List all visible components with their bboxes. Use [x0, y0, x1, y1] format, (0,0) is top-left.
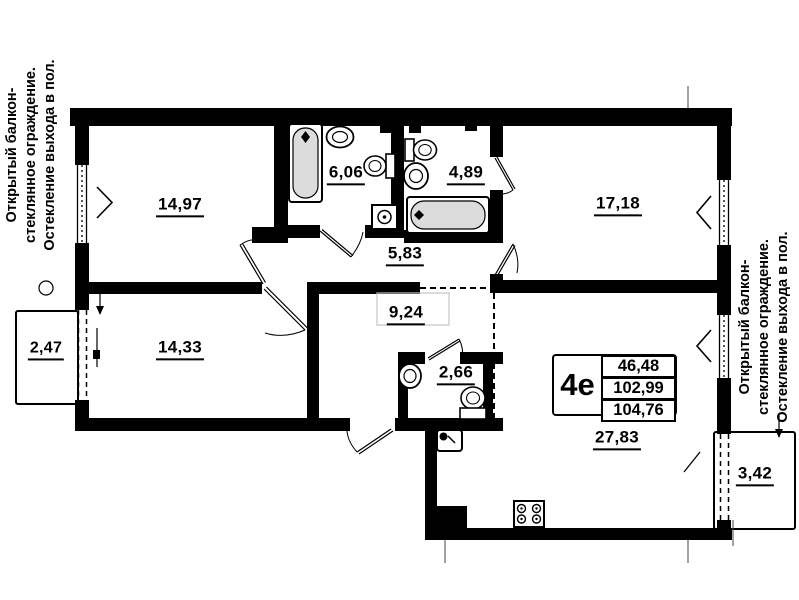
vent-shaft-icon — [380, 120, 393, 133]
window-chevron-icon — [697, 196, 711, 229]
window-chevron-icon — [97, 187, 112, 218]
sink-icon — [399, 364, 421, 388]
kitchen-sink-icon — [437, 430, 462, 451]
room-label-bedroom-3: 14,33 — [156, 337, 204, 360]
stove-icon — [514, 501, 544, 527]
bathtub-icon — [289, 124, 322, 202]
vent-shaft-icon — [465, 119, 477, 131]
window-right-lower — [720, 315, 729, 378]
plan-linework — [0, 0, 799, 600]
balcony-door-right — [684, 434, 729, 520]
unit-total-area: 104,76 — [601, 399, 676, 422]
toilet-icon — [460, 387, 486, 419]
unit-living-area: 46,48 — [601, 355, 676, 378]
sink-icon — [404, 163, 428, 189]
bathtub-icon — [407, 197, 489, 233]
unit-area: 102,99 — [601, 377, 676, 400]
room-label-bedroom-1: 14,97 — [156, 194, 204, 217]
door-bathroom2-ensuite — [495, 157, 515, 194]
room-label-balcony-right: 3,42 — [736, 463, 774, 486]
door-bathroom1 — [320, 230, 363, 258]
room-label-bedroom-2: 17,18 — [594, 193, 642, 216]
unit-info-box: 4е 46,48 102,99 104,76 — [552, 354, 677, 416]
toilet-icon — [405, 139, 437, 161]
room-label-balcony-left: 2,47 — [28, 339, 64, 360]
room-label-bathroom-2: 4,89 — [447, 162, 485, 185]
door-wc — [428, 339, 463, 360]
sink-icon — [327, 127, 354, 148]
window-right-upper — [720, 180, 729, 245]
door-bedroom2 — [495, 244, 518, 277]
room-label-wc: 2,66 — [437, 362, 475, 385]
floor-plan: Открытый балкон- стеклянное ограждение. … — [0, 0, 799, 600]
window-left — [78, 165, 87, 243]
room-label-hall: 9,24 — [387, 302, 425, 325]
unit-area-rows: 46,48 102,99 104,76 — [601, 356, 675, 414]
extension-line — [445, 86, 733, 563]
balcony-door-left — [79, 310, 101, 400]
unit-type-label: 4е — [554, 356, 601, 414]
door-bedroom1 — [240, 240, 266, 284]
door-bedroom3 — [264, 287, 308, 335]
room-label-bathroom-1: 6,06 — [327, 162, 365, 185]
room-label-corridor: 5,83 — [386, 243, 424, 266]
room-label-kitchen-living: 27,83 — [593, 427, 641, 450]
vent-shaft-icon — [409, 121, 421, 133]
washing-machine-icon — [372, 205, 397, 229]
window-chevron-icon — [697, 330, 711, 362]
toilet-icon — [364, 154, 395, 178]
door-entrance — [347, 429, 393, 454]
